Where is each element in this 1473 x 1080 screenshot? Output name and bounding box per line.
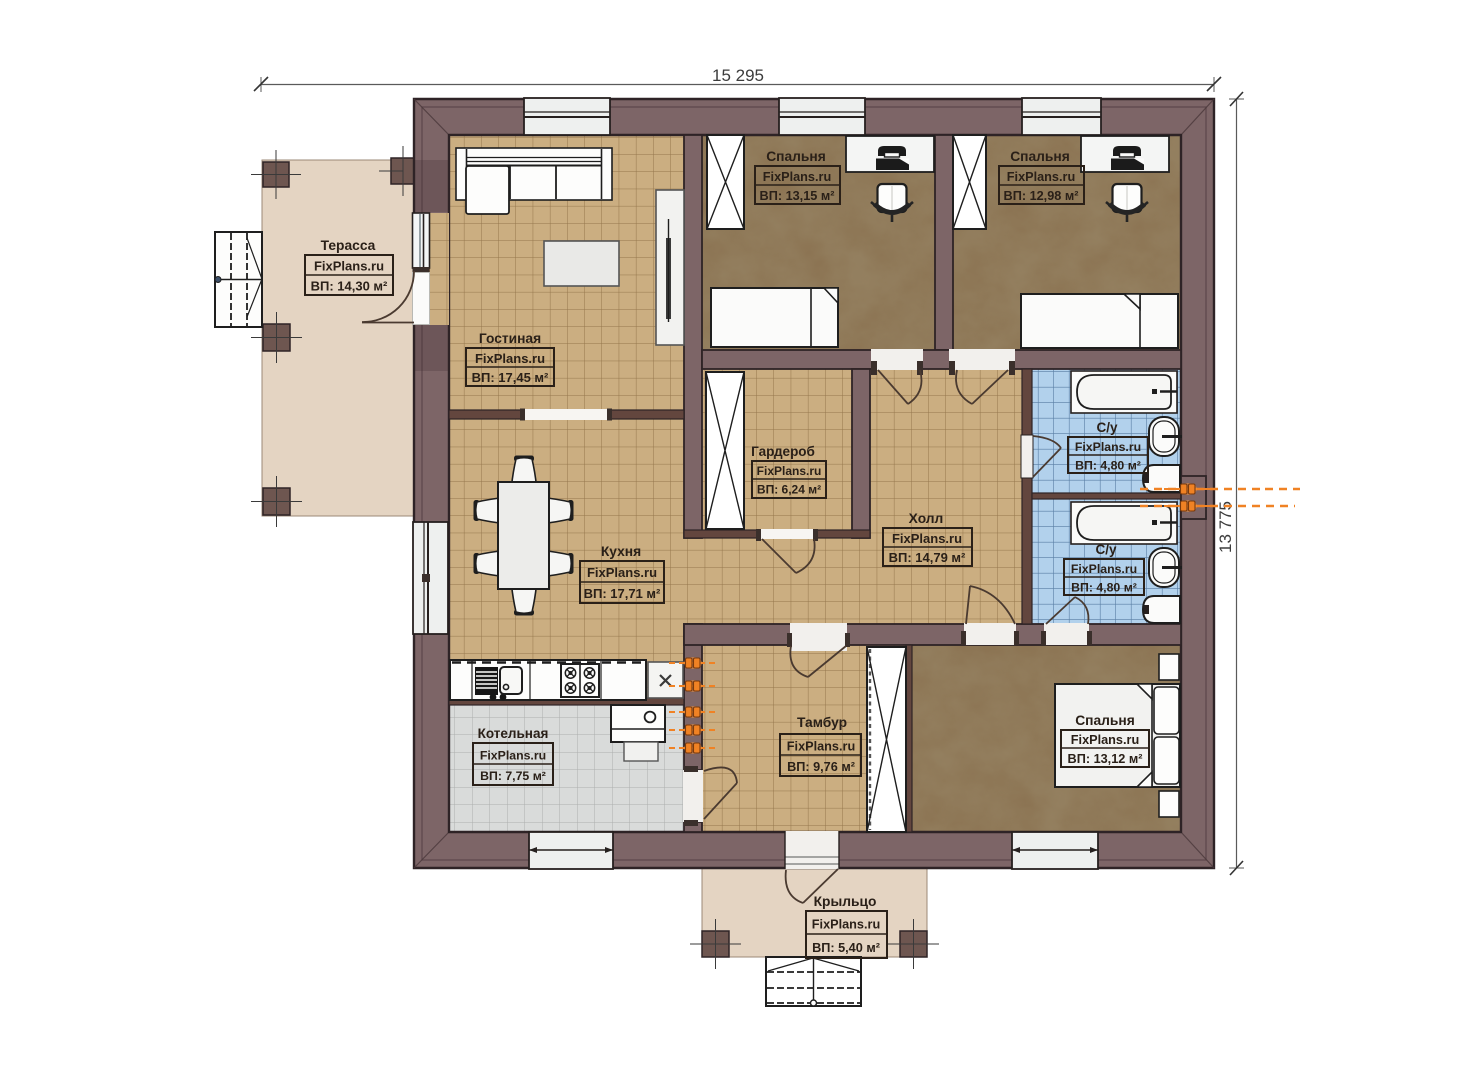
svg-text:FixPlans.ru: FixPlans.ru bbox=[812, 918, 880, 932]
svg-text:FixPlans.ru: FixPlans.ru bbox=[1075, 440, 1141, 454]
svg-text:ВП: 13,12 м²: ВП: 13,12 м² bbox=[1068, 752, 1143, 766]
svg-text:ВП: 14,79 м²: ВП: 14,79 м² bbox=[889, 550, 966, 565]
svg-text:FixPlans.ru: FixPlans.ru bbox=[1071, 733, 1139, 747]
svg-text:FixPlans.ru: FixPlans.ru bbox=[475, 351, 545, 366]
svg-text:FixPlans.ru: FixPlans.ru bbox=[480, 749, 546, 763]
svg-text:15 295: 15 295 bbox=[712, 66, 764, 85]
svg-text:ВП: 13,15 м²: ВП: 13,15 м² bbox=[760, 189, 835, 203]
svg-text:ВП: 17,45 м²: ВП: 17,45 м² bbox=[472, 370, 549, 385]
svg-text:FixPlans.ru: FixPlans.ru bbox=[763, 170, 831, 184]
svg-text:Холл: Холл bbox=[909, 511, 944, 526]
svg-text:FixPlans.ru: FixPlans.ru bbox=[787, 740, 855, 754]
svg-text:ВП: 17,71 м²: ВП: 17,71 м² bbox=[584, 586, 661, 601]
svg-text:ВП: 5,40 м²: ВП: 5,40 м² bbox=[812, 941, 880, 955]
svg-text:Терасса: Терасса bbox=[321, 238, 376, 253]
svg-text:Гардероб: Гардероб bbox=[751, 444, 815, 459]
svg-text:FixPlans.ru: FixPlans.ru bbox=[892, 531, 962, 546]
svg-text:Тамбур: Тамбур bbox=[797, 715, 847, 730]
svg-text:Спальня: Спальня bbox=[766, 149, 826, 164]
svg-text:Крыльцо: Крыльцо bbox=[814, 894, 877, 909]
svg-text:Котельная: Котельная bbox=[478, 726, 549, 741]
svg-text:Спальня: Спальня bbox=[1075, 713, 1135, 728]
svg-text:С/у: С/у bbox=[1096, 420, 1118, 435]
svg-text:ВП: 12,98 м²: ВП: 12,98 м² bbox=[1004, 189, 1079, 203]
svg-text:ВП: 4,80 м²: ВП: 4,80 м² bbox=[1071, 581, 1137, 595]
svg-text:FixPlans.ru: FixPlans.ru bbox=[314, 259, 384, 274]
svg-text:ВП: 14,30 м²: ВП: 14,30 м² bbox=[311, 279, 388, 294]
svg-text:ВП: 6,24 м²: ВП: 6,24 м² bbox=[757, 483, 821, 497]
svg-text:13 775: 13 775 bbox=[1216, 501, 1235, 553]
svg-text:ВП: 9,76 м²: ВП: 9,76 м² bbox=[787, 760, 855, 774]
svg-text:FixPlans.ru: FixPlans.ru bbox=[587, 565, 657, 580]
svg-text:FixPlans.ru: FixPlans.ru bbox=[1071, 562, 1137, 576]
svg-text:Спальня: Спальня bbox=[1010, 149, 1070, 164]
svg-text:Гостиная: Гостиная bbox=[479, 331, 541, 346]
svg-text:ВП: 7,75 м²: ВП: 7,75 м² bbox=[480, 769, 546, 783]
svg-text:FixPlans.ru: FixPlans.ru bbox=[757, 464, 822, 478]
svg-text:С/у: С/у bbox=[1095, 542, 1117, 557]
svg-text:ВП: 4,80 м²: ВП: 4,80 м² bbox=[1075, 459, 1141, 473]
svg-text:FixPlans.ru: FixPlans.ru bbox=[1007, 170, 1075, 184]
svg-text:Кухня: Кухня bbox=[601, 544, 641, 559]
